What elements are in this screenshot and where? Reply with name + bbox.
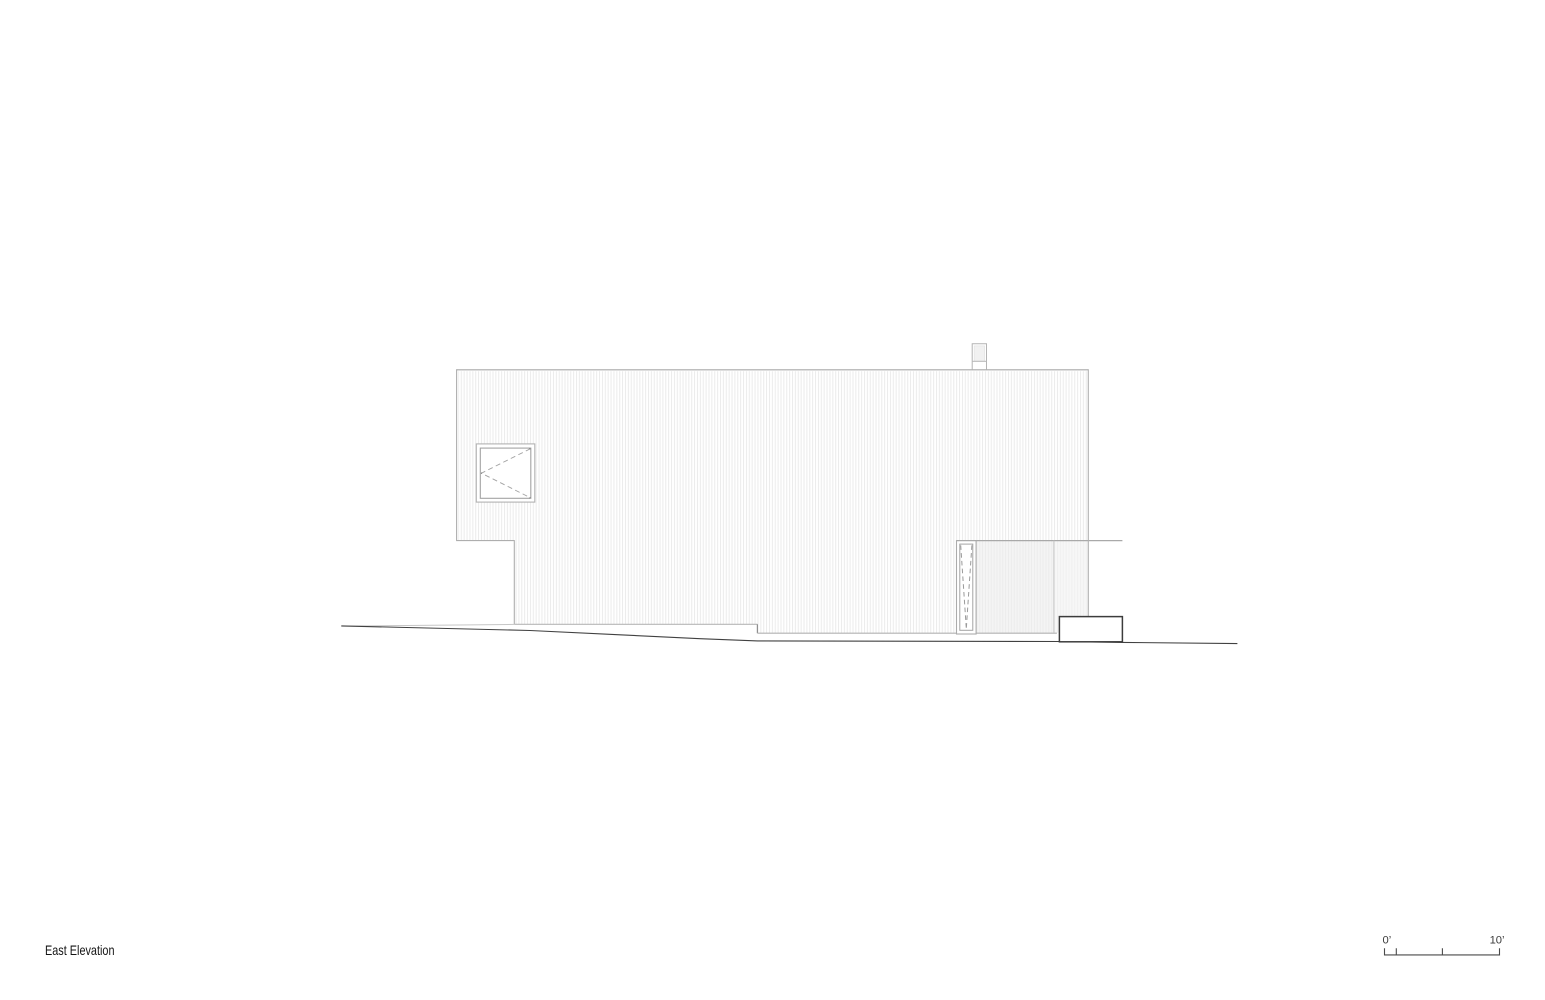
svg-text:10’: 10’ xyxy=(1490,934,1505,946)
svg-text:0’: 0’ xyxy=(1383,934,1392,946)
svg-text:East Elevation: East Elevation xyxy=(45,943,115,958)
